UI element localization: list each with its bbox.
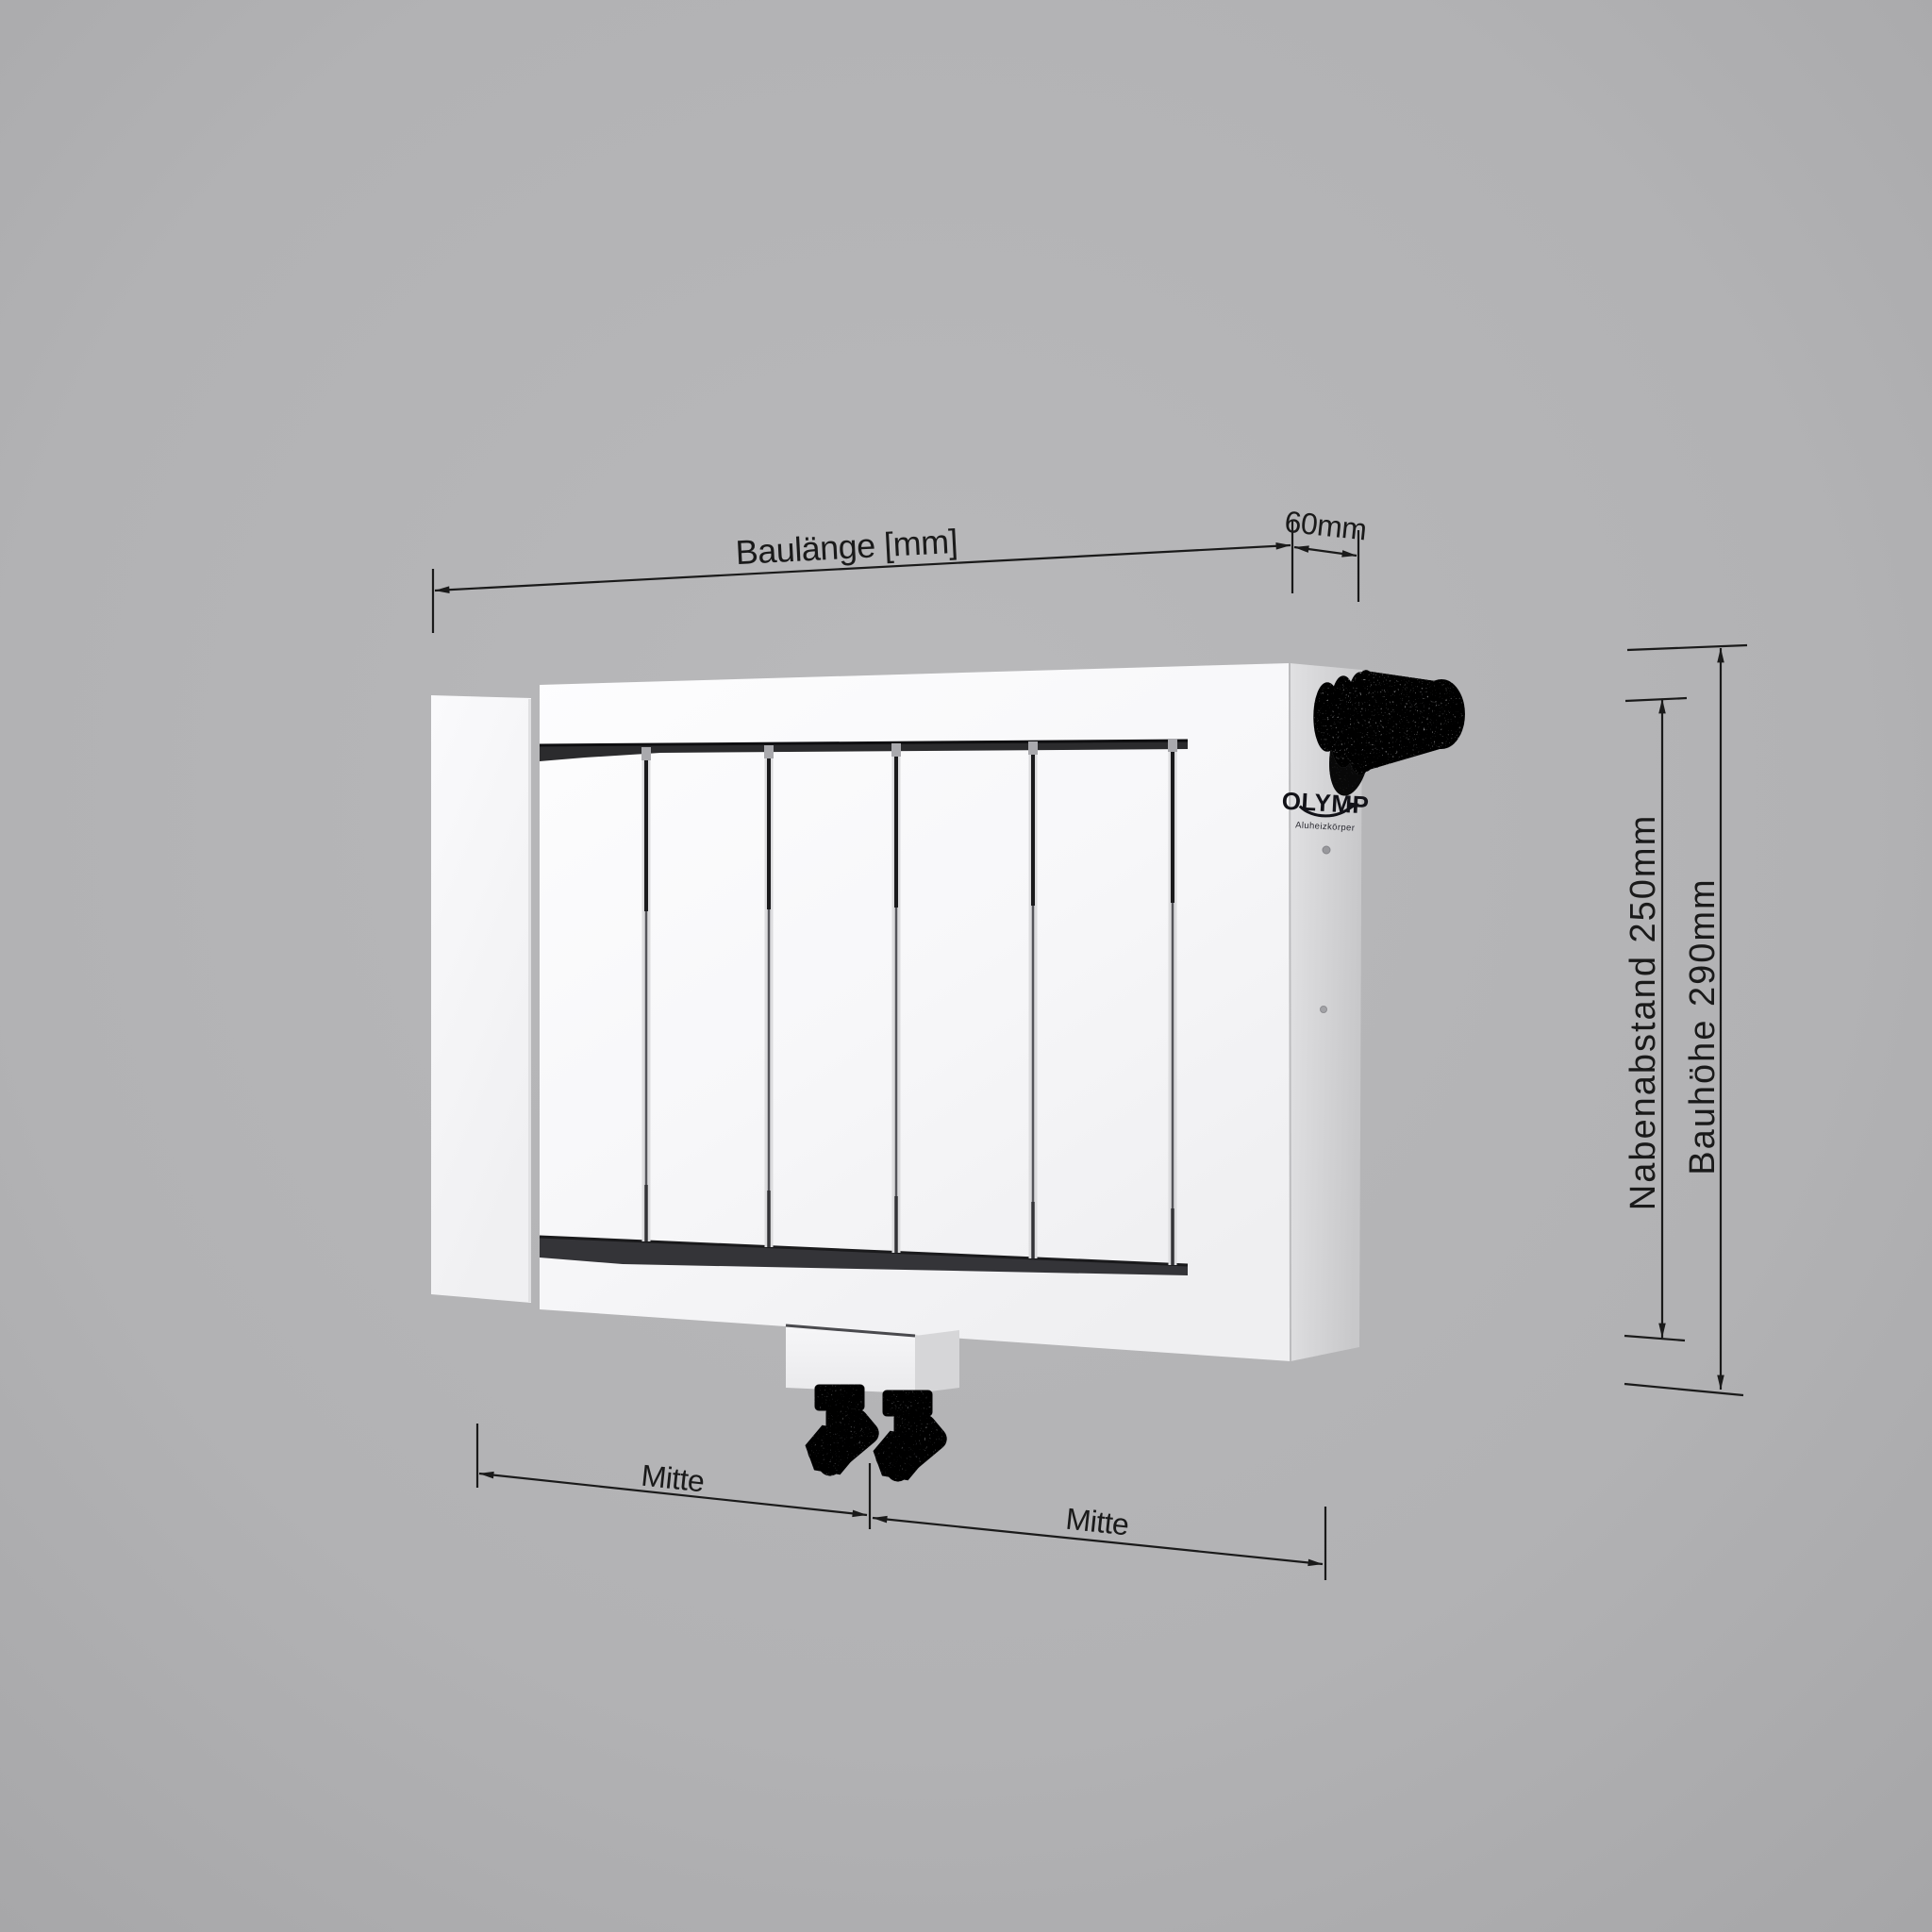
panel-gap (891, 743, 901, 1253)
panel-gap (1168, 739, 1177, 1265)
connection-block-side (915, 1330, 959, 1393)
brand-logo-text: OLYMP (1281, 787, 1370, 820)
front-side-edge (1290, 663, 1291, 1361)
panel-gap (1028, 741, 1038, 1258)
side-panel-screw-lower (1321, 1007, 1327, 1013)
dim-nabenabstand-label: Nabenabstand 250mm (1624, 814, 1663, 1210)
dim-mitte-links-label: Mitte (640, 1458, 706, 1499)
panel-gap (764, 745, 774, 1247)
panel-gap (641, 747, 651, 1241)
radiator-left-slat (431, 695, 531, 1303)
dim-bauhoehe-label: Bauhöhe 290mm (1683, 877, 1723, 1174)
connection-block (786, 1325, 959, 1393)
dim-mitte-rechts-label: Mitte (1064, 1502, 1130, 1542)
valve-end-cap-inner (1426, 688, 1460, 741)
radiator-technical-drawing: OLYMP Aluheizkörper (0, 0, 1932, 1932)
side-panel-screw-upper (1323, 846, 1330, 854)
